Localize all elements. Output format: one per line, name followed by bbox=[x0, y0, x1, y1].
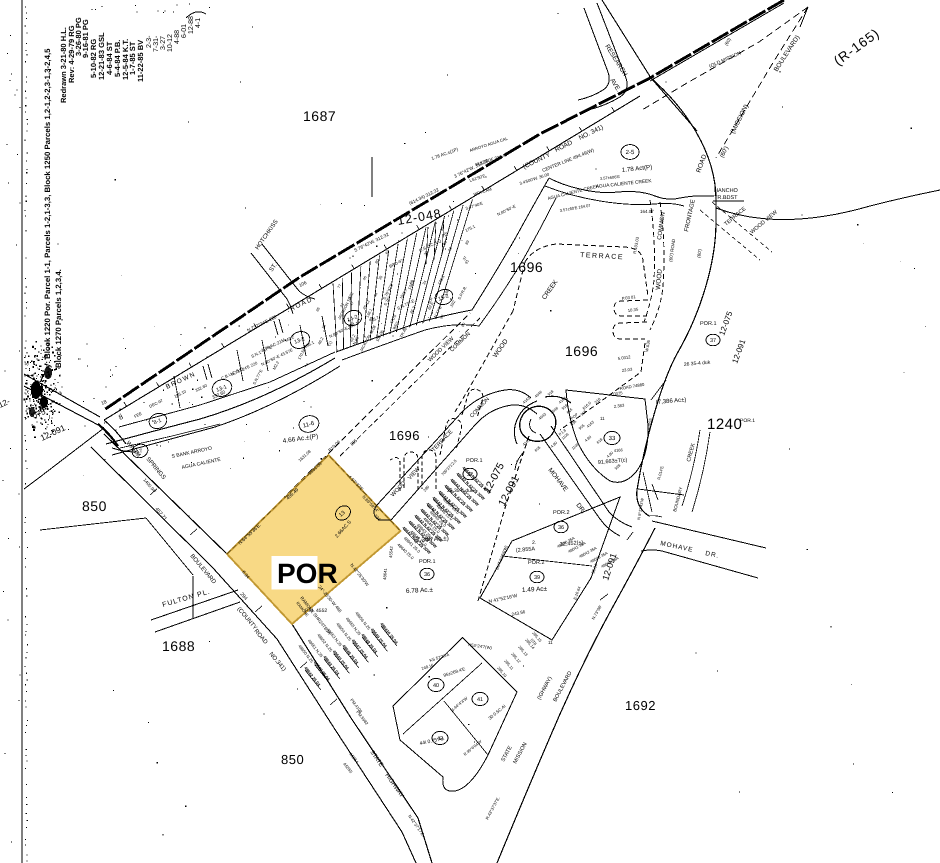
svg-text:32: 32 bbox=[467, 472, 473, 478]
svg-text:45542: 45542 bbox=[388, 545, 394, 558]
svg-text:1692: 1692 bbox=[625, 698, 656, 713]
svg-text:11-22-85 BV: 11-22-85 BV bbox=[136, 40, 145, 82]
svg-text:11: 11 bbox=[600, 416, 605, 421]
svg-text:48641: 48641 bbox=[382, 567, 388, 580]
svg-text:41: 41 bbox=[477, 697, 483, 703]
svg-text:1696: 1696 bbox=[510, 259, 543, 275]
svg-text:POR.2: POR.2 bbox=[553, 510, 570, 516]
svg-text:2-5: 2-5 bbox=[626, 149, 635, 156]
svg-text:850: 850 bbox=[82, 498, 107, 514]
svg-text:1.49 Ac±: 1.49 Ac± bbox=[522, 586, 548, 594]
svg-text:36: 36 bbox=[424, 572, 430, 578]
svg-text:7-31-: 7-31- bbox=[153, 35, 160, 52]
svg-text:26 35-4 duk: 26 35-4 duk bbox=[447, 488, 474, 494]
svg-text:2-3-: 2-3- bbox=[146, 35, 153, 48]
svg-text:.: . bbox=[900, 258, 901, 264]
svg-text:4166: 4166 bbox=[614, 447, 624, 453]
svg-text:1240: 1240 bbox=[707, 416, 742, 433]
svg-text:40: 40 bbox=[433, 683, 439, 689]
svg-text:POR.1: POR.1 bbox=[740, 418, 755, 424]
svg-text:12-88: 12-88 bbox=[188, 16, 195, 34]
svg-text:36: 36 bbox=[558, 525, 564, 531]
svg-text:3-27: 3-27 bbox=[160, 36, 167, 50]
svg-text:1: 1 bbox=[440, 523, 443, 529]
svg-text:37: 37 bbox=[710, 338, 716, 344]
svg-text:1687: 1687 bbox=[303, 108, 336, 124]
svg-text:POR: POR bbox=[277, 558, 338, 589]
svg-text:POR.1: POR.1 bbox=[466, 458, 483, 464]
svg-text:33: 33 bbox=[609, 435, 616, 442]
svg-text:11: 11 bbox=[548, 640, 553, 645]
svg-text:TR.BDST: TR.BDST bbox=[714, 195, 738, 201]
svg-text:4-1: 4-1 bbox=[195, 18, 202, 28]
svg-text:y: Block 1220 Por. Parcel 1-1,: y: Block 1220 Por. Parcel 1-1, Parcels 1… bbox=[43, 48, 52, 368]
svg-text:2.: 2. bbox=[532, 540, 536, 546]
svg-text:POR.1: POR.1 bbox=[700, 321, 717, 327]
svg-text:6.78 Ac.±: 6.78 Ac.± bbox=[406, 587, 434, 595]
svg-text:6-01: 6-01 bbox=[181, 24, 188, 38]
svg-text:4-88: 4-88 bbox=[174, 30, 181, 44]
svg-text:39: 39 bbox=[534, 575, 540, 581]
svg-text:10-12: 10-12 bbox=[167, 34, 174, 52]
svg-text:1696: 1696 bbox=[565, 343, 598, 359]
svg-text:HANCHO: HANCHO bbox=[714, 188, 739, 194]
svg-text:POR.2: POR.2 bbox=[528, 560, 545, 566]
svg-text:850: 850 bbox=[281, 752, 304, 767]
svg-text:164.07: 164.07 bbox=[640, 209, 654, 214]
svg-text:1688: 1688 bbox=[162, 638, 195, 654]
svg-text:1696: 1696 bbox=[389, 428, 420, 443]
svg-text:Block 1270 Parcels 1,2,3,4.: Block 1270 Parcels 1,2,3,4. bbox=[54, 269, 63, 368]
